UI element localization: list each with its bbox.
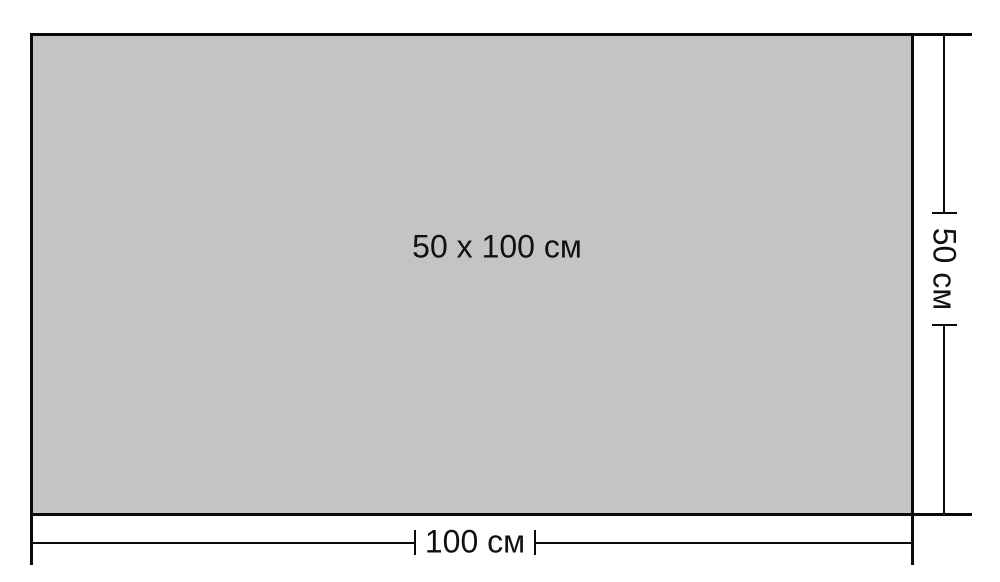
width-dimension-tick-left — [414, 530, 416, 555]
height-dimension-tick-bottom — [932, 324, 957, 326]
rectangle-size-label: 50 x 100 см — [412, 229, 582, 266]
product-rectangle — [30, 33, 914, 516]
height-dimension-line-bottom-segment — [943, 326, 945, 513]
width-extension-line-left — [30, 516, 33, 565]
width-extension-line-right — [911, 516, 914, 565]
height-dimension-line-top-segment — [943, 36, 945, 213]
width-dimension-tick-right — [534, 530, 536, 555]
height-dimension-label: 50 см — [926, 228, 963, 310]
width-dimension-line-left-segment — [31, 542, 415, 544]
dimension-diagram: 50 x 100 см 100 см 50 см — [0, 0, 1000, 582]
width-dimension-line-right-segment — [535, 542, 913, 544]
height-extension-line-bottom — [914, 513, 972, 516]
height-dimension-tick-top — [932, 212, 957, 214]
width-dimension-label: 100 см — [425, 524, 525, 561]
